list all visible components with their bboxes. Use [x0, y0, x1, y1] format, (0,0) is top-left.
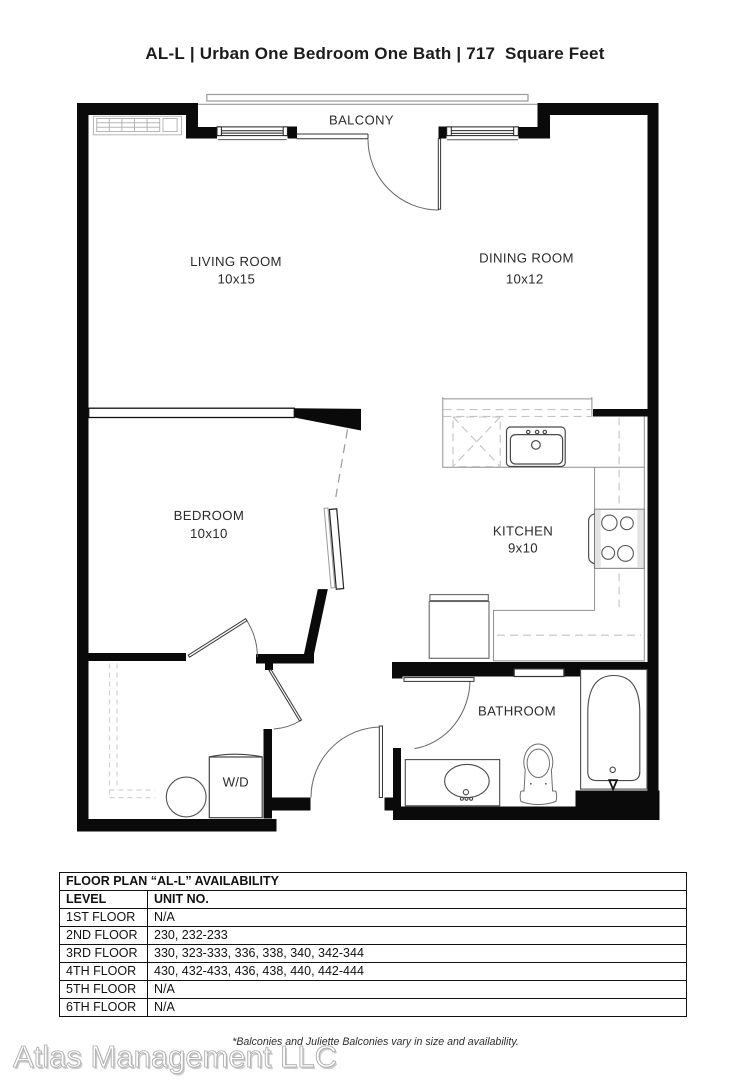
svg-text:BEDROOM: BEDROOM: [174, 508, 245, 523]
svg-text:10x12: 10x12: [506, 271, 544, 286]
svg-text:W/D: W/D: [223, 775, 249, 790]
svg-text:KITCHEN: KITCHEN: [493, 524, 553, 539]
svg-text:10x10: 10x10: [190, 526, 228, 541]
svg-text:9x10: 9x10: [508, 541, 538, 556]
svg-text:BATHROOM: BATHROOM: [478, 704, 556, 719]
svg-text:10x15: 10x15: [217, 271, 255, 286]
svg-text:DINING ROOM: DINING ROOM: [479, 251, 574, 266]
svg-text:LIVING ROOM: LIVING ROOM: [190, 254, 282, 269]
svg-text:BALCONY: BALCONY: [329, 112, 394, 127]
